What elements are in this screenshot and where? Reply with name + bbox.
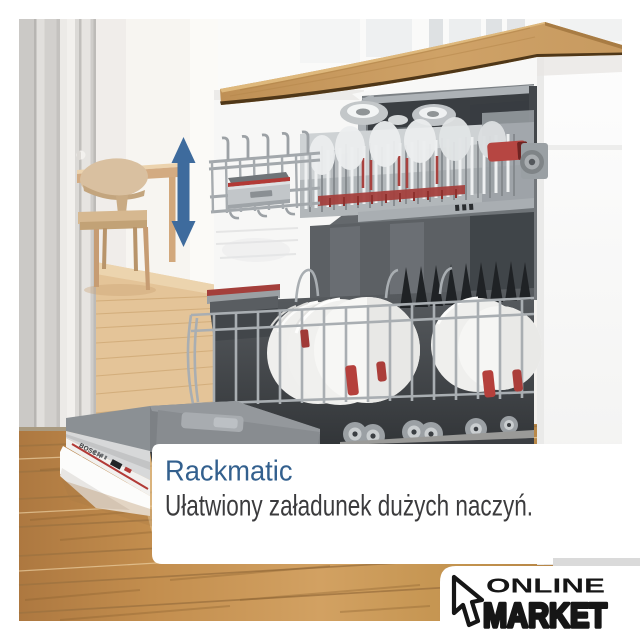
svg-text:Rackmatic: Rackmatic: [165, 456, 293, 488]
svg-text:MARKET: MARKET: [483, 597, 607, 635]
svg-text:Ułatwiony załadunek dużych nac: Ułatwiony załadunek dużych naczyń.: [165, 490, 533, 523]
svg-text:ONLINE: ONLINE: [486, 576, 605, 598]
